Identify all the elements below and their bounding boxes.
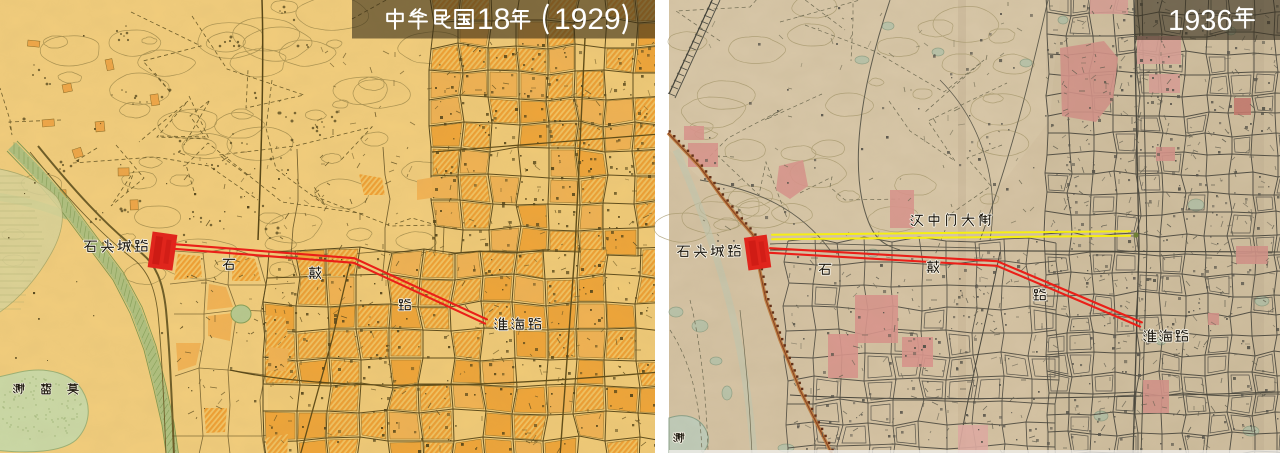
svg-text:1936: 1936: [1168, 5, 1233, 37]
svg-text:18: 18: [477, 3, 510, 36]
svg-text:1929: 1929: [554, 3, 621, 36]
